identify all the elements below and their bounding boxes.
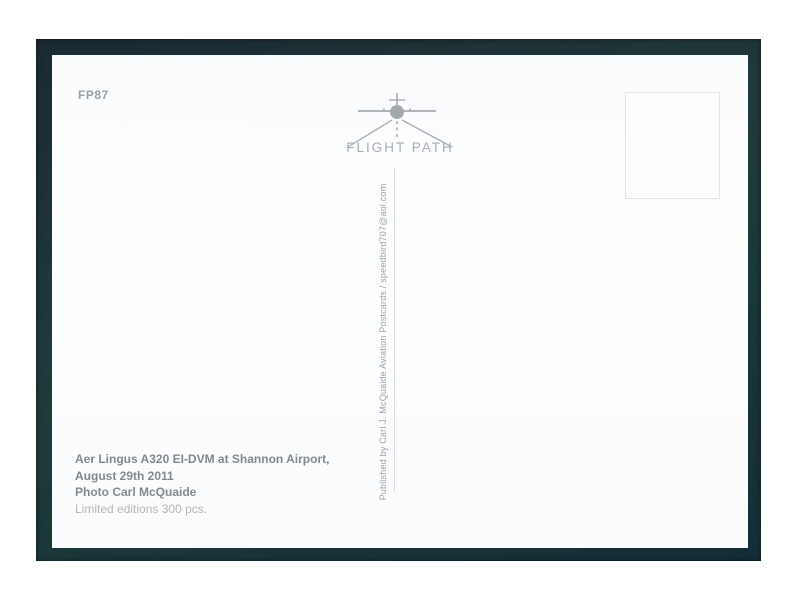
caption-edition: Limited editions 300 pcs. <box>75 501 329 518</box>
publisher-credit-vertical-text: Published by Carl J. McQuaide Aviation P… <box>378 184 388 501</box>
caption-photo-credit: Photo Carl McQuaide <box>75 484 329 501</box>
vertical-divider-line <box>394 168 395 492</box>
postcard-code: FP87 <box>78 88 109 102</box>
caption-date: August 29th 2011 <box>75 468 329 485</box>
brand-name: FLIGHT PATH <box>346 140 454 155</box>
stamp-box <box>625 92 720 199</box>
postcard-back: FP87 FLIGHT PATH <box>52 55 748 548</box>
caption-title: Aer Lingus A320 EI-DVM at Shannon Airpor… <box>75 451 329 468</box>
scanned-postcard-photo: FP87 FLIGHT PATH <box>0 0 800 600</box>
photo-dark-frame: FP87 FLIGHT PATH <box>36 39 761 561</box>
caption-block: Aer Lingus A320 EI-DVM at Shannon Airpor… <box>75 451 329 517</box>
